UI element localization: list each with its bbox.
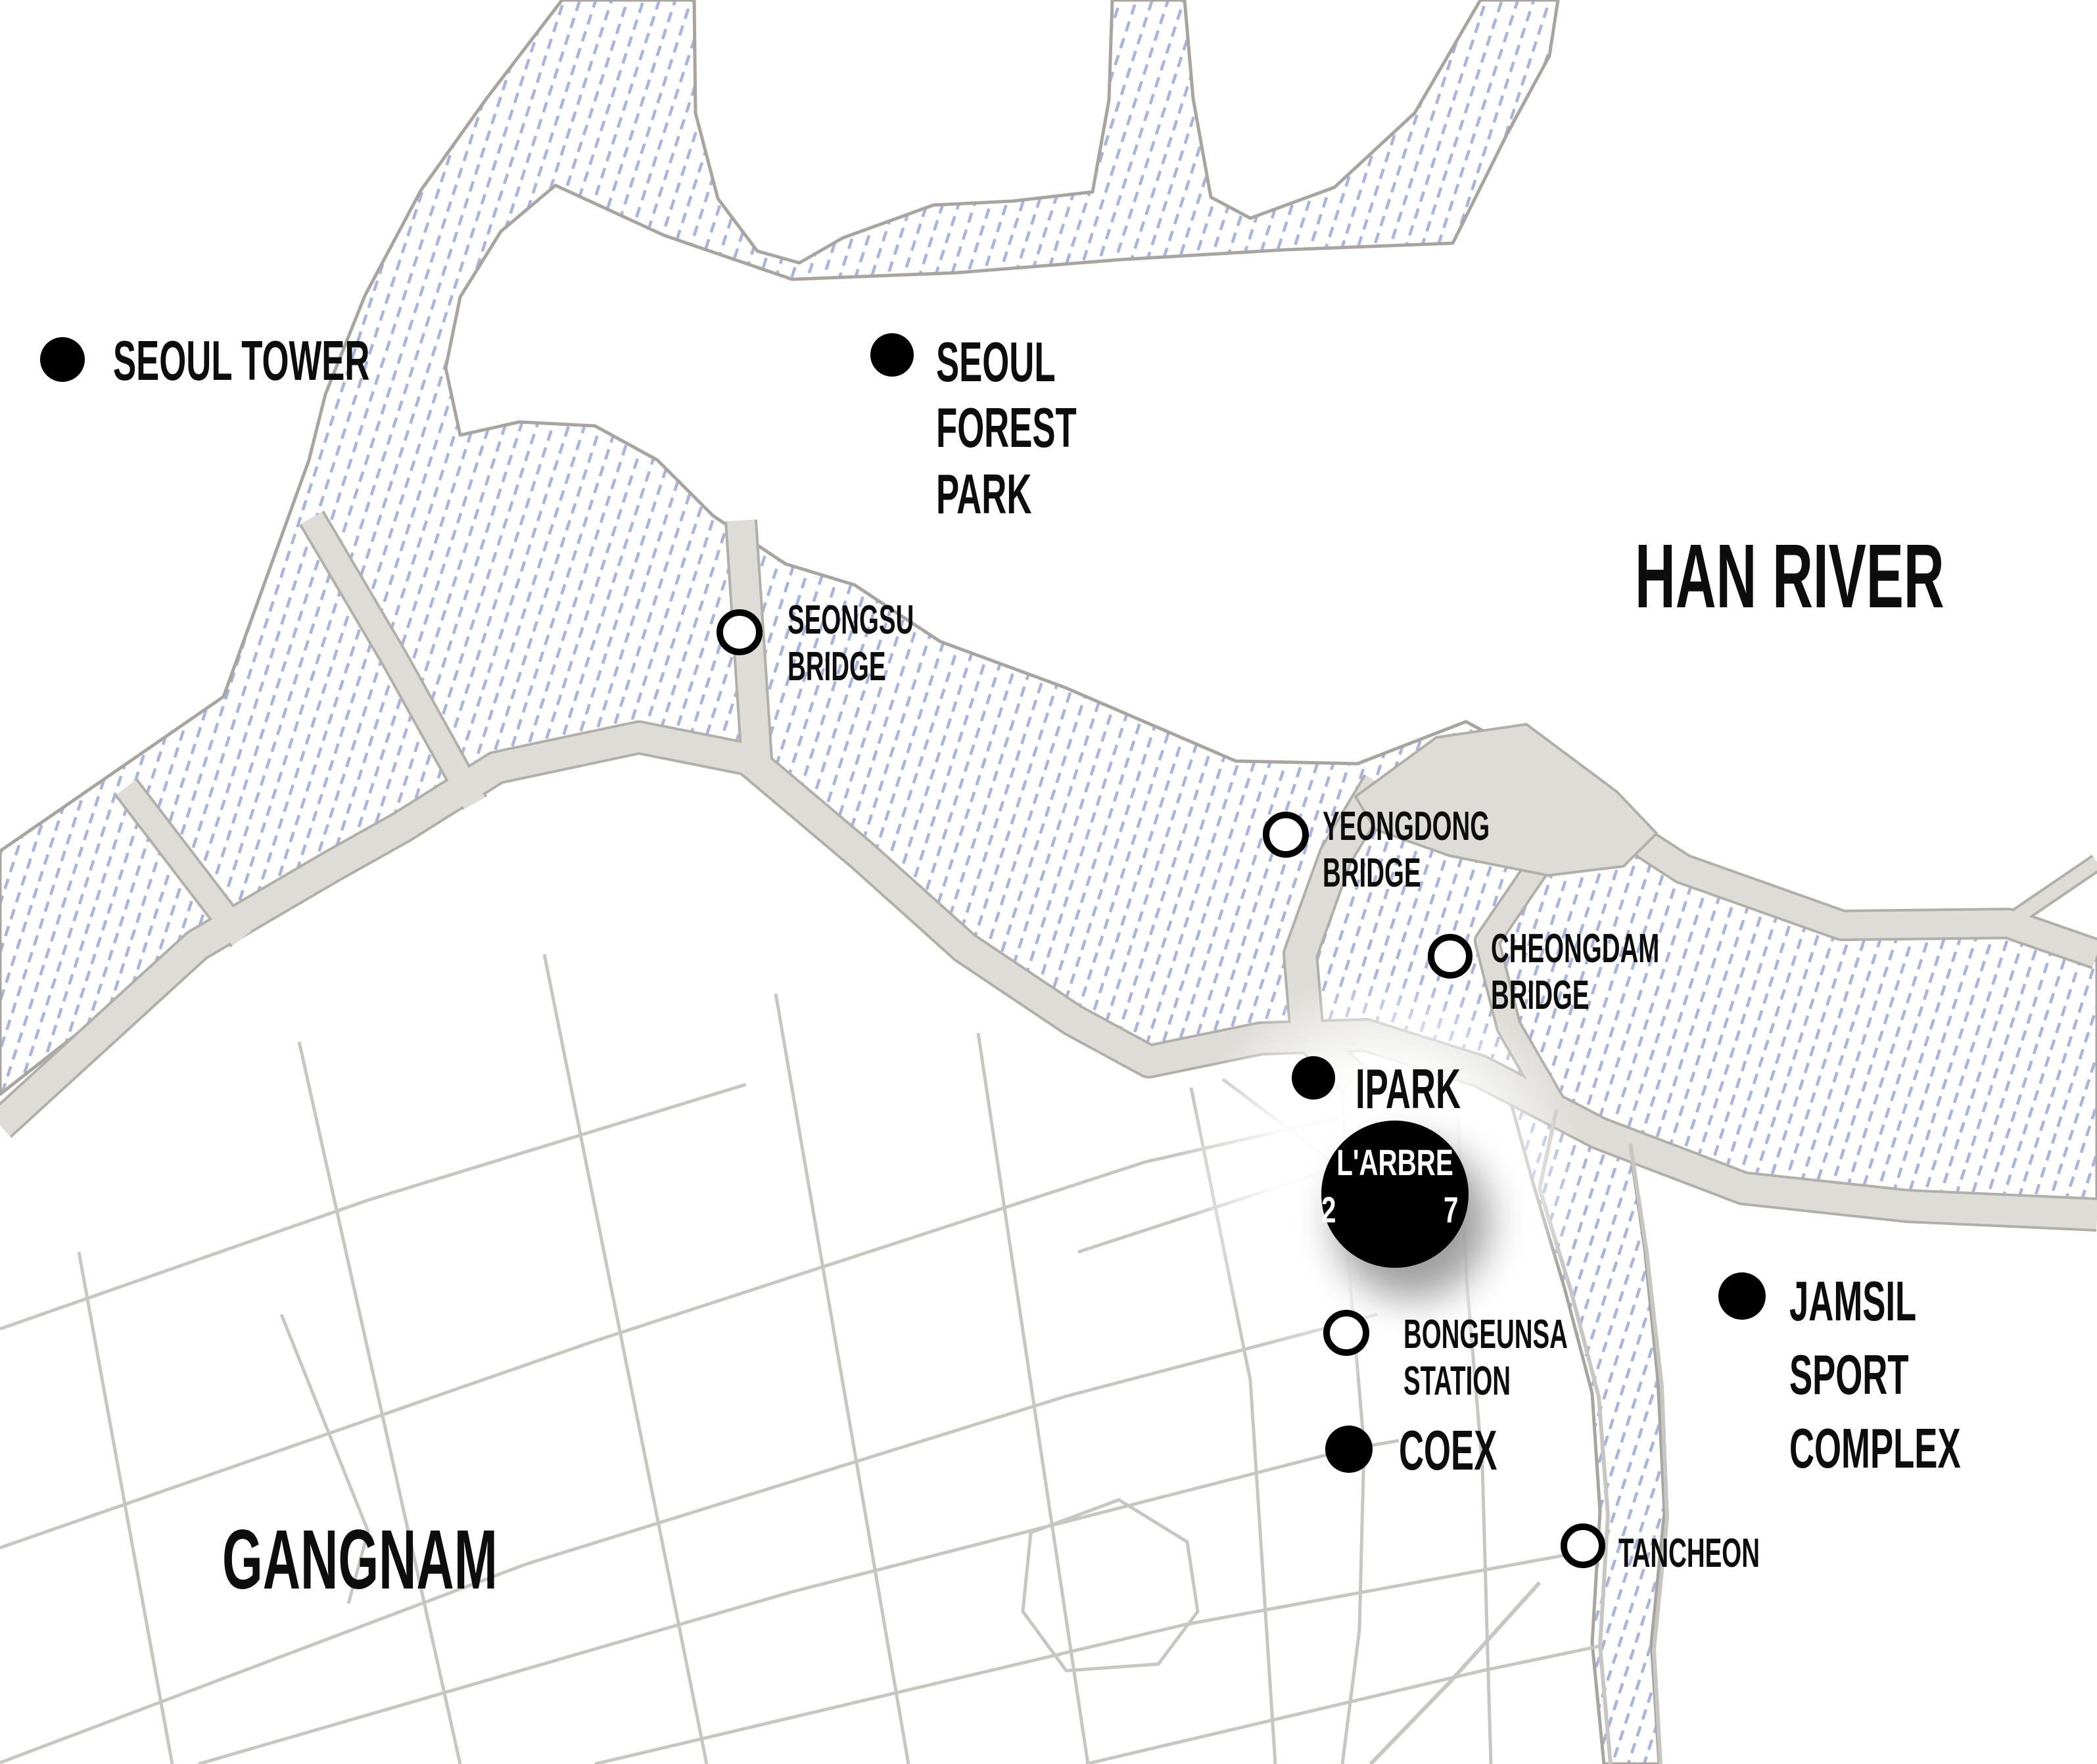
larbre-badge-circle xyxy=(1321,1121,1469,1268)
coex-dot-icon xyxy=(1325,1426,1373,1473)
seoul-map: SEOUL TOWER SEOUL FOREST PARK HAN RIVER … xyxy=(0,0,2097,1764)
jamsil-dot-icon xyxy=(1718,1272,1766,1320)
bongeunsa-station-circle-icon xyxy=(1327,1313,1366,1353)
seoul-tower-dot-icon xyxy=(40,337,85,382)
seongsu-bridge-circle-icon xyxy=(720,613,759,652)
ipark-dot-icon xyxy=(1292,1056,1335,1100)
yeongdong-bridge-circle-icon xyxy=(1266,815,1306,854)
map-graphics xyxy=(0,0,2097,1764)
seoul-forest-park-dot-icon xyxy=(870,333,914,377)
cheongdam-bridge-circle-icon xyxy=(1431,937,1469,975)
tancheon-circle-icon xyxy=(1564,1527,1602,1565)
